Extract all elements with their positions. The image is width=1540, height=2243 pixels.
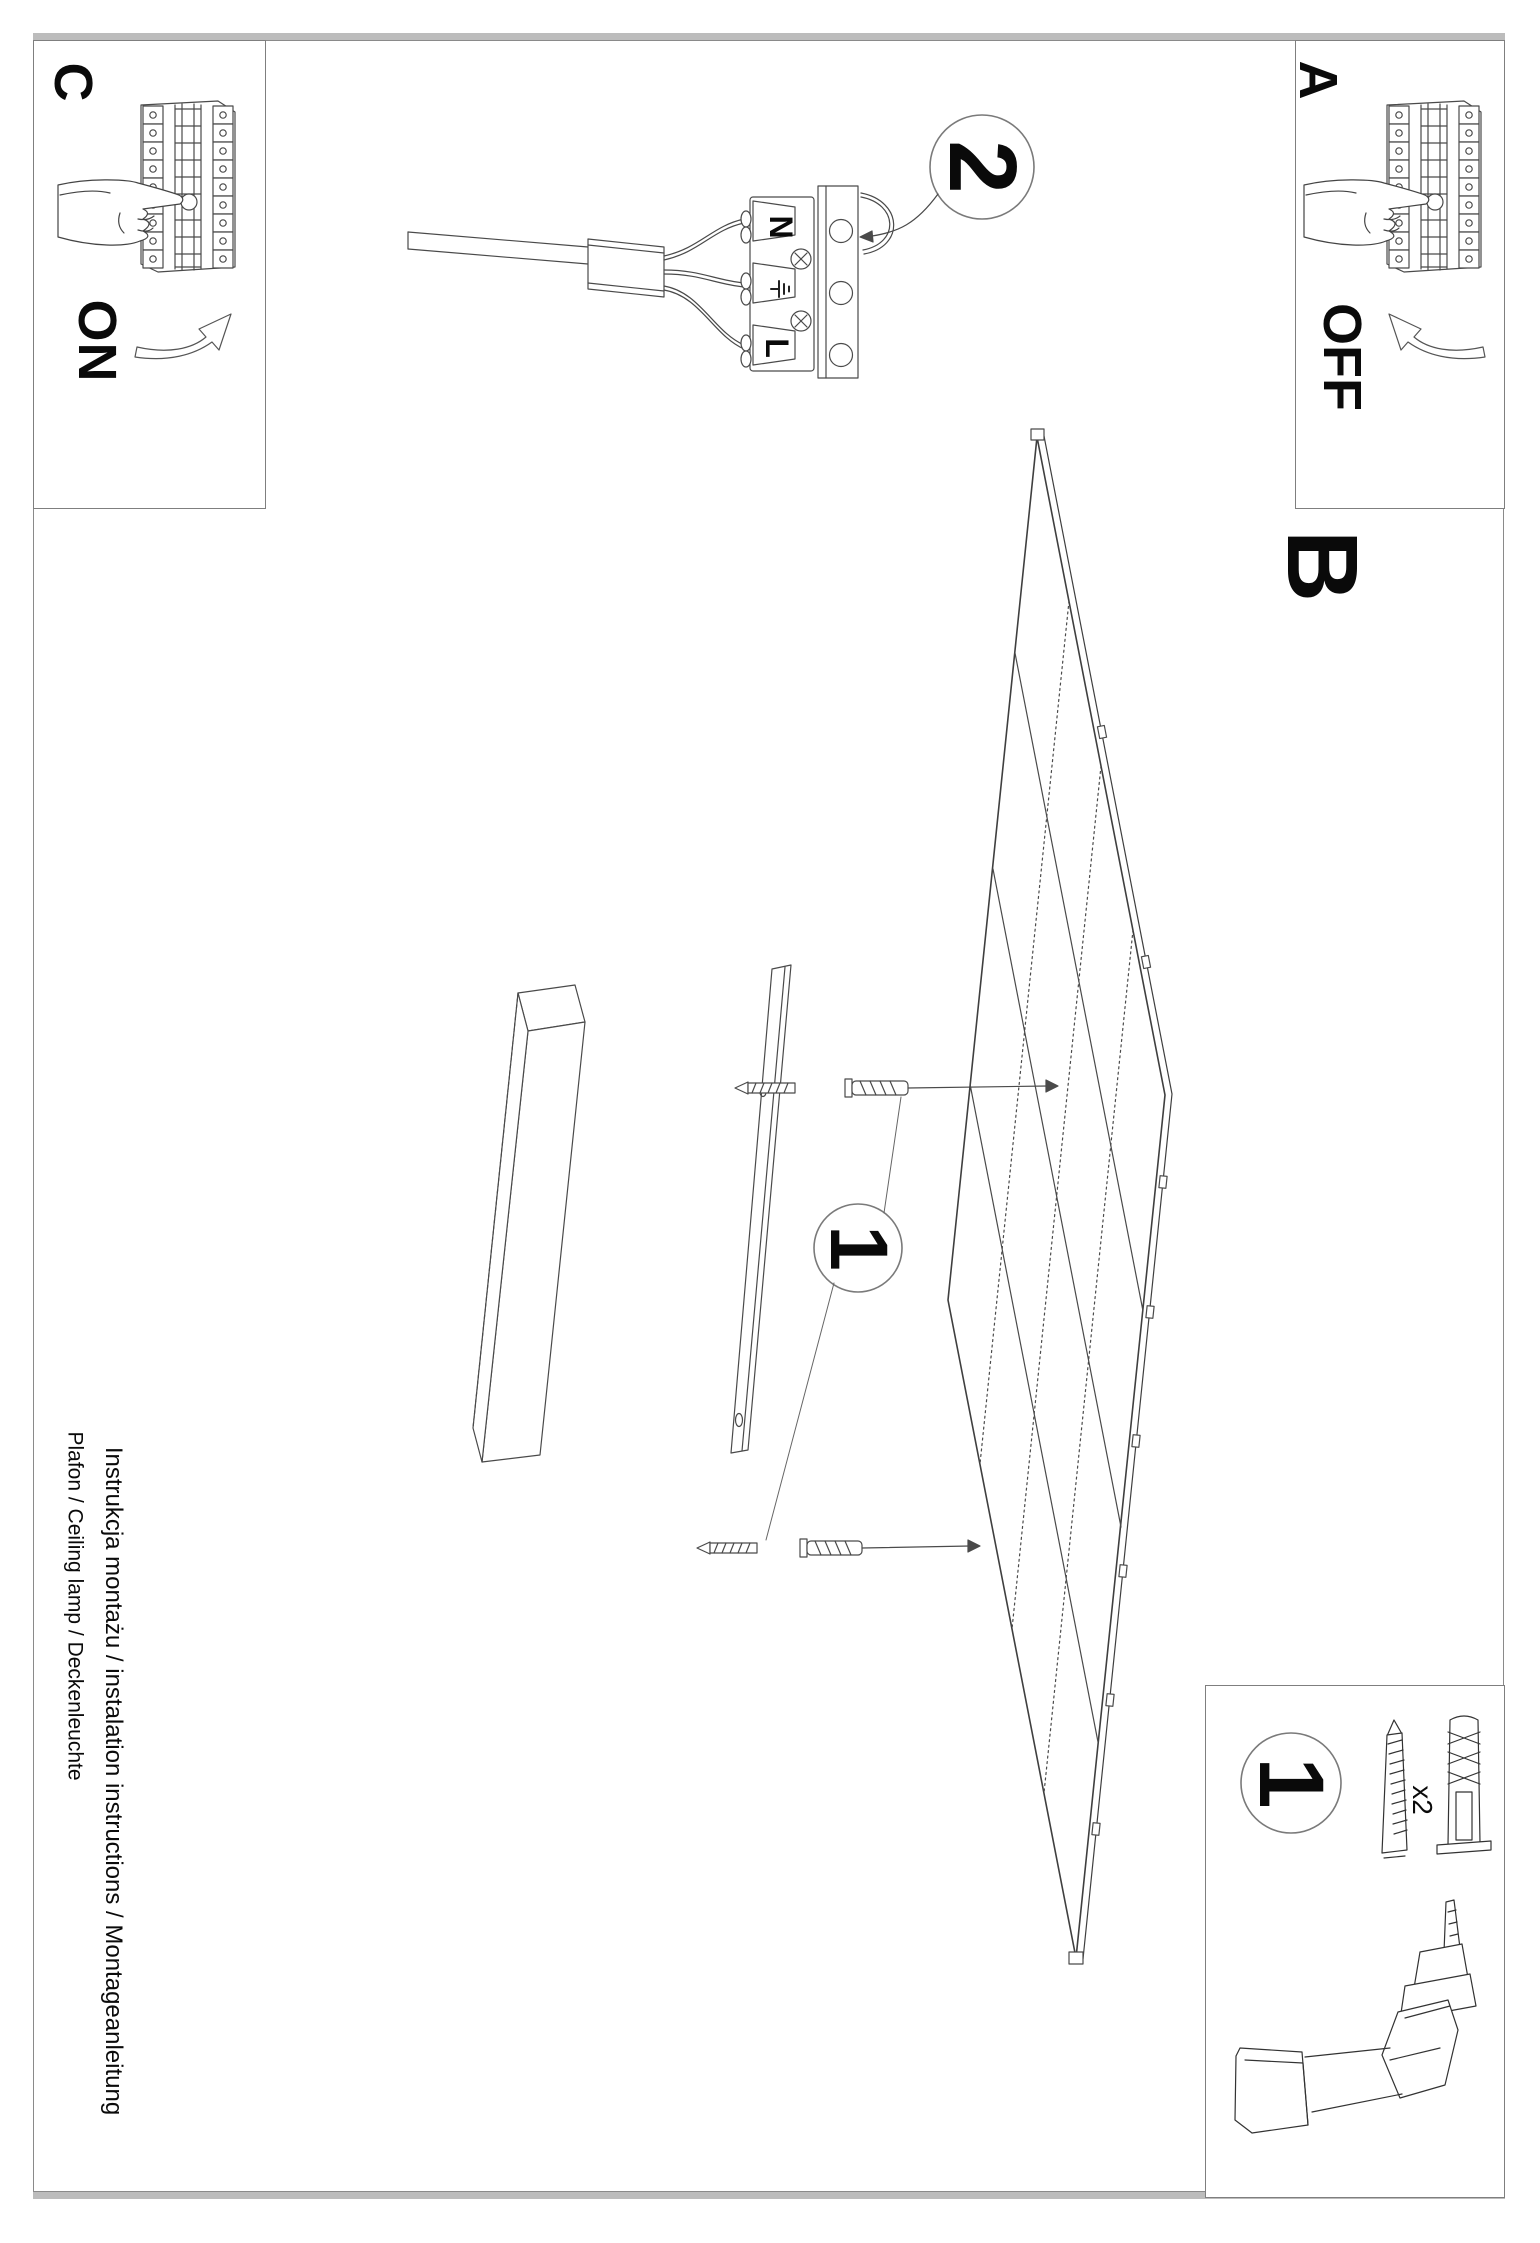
curved-arrow-off-icon	[1389, 314, 1485, 359]
cable-icon	[408, 232, 664, 297]
switch-on-label: ON	[70, 300, 124, 383]
step2-leader-arrow	[860, 194, 938, 242]
parts-badge-number: 1	[1245, 1757, 1337, 1808]
screw-icon	[697, 1542, 757, 1554]
wires-icon	[664, 219, 744, 349]
step2-badge-number: 2	[934, 140, 1030, 193]
terminal-neutral-label: N	[765, 215, 797, 238]
switch-off-label: OFF	[1315, 303, 1369, 411]
screw-icon	[1382, 1720, 1407, 1858]
breaker-panel-icon	[1387, 101, 1481, 272]
step1-badge-number: 1	[817, 1225, 899, 1271]
parts-quantity-label: x2	[1408, 1785, 1436, 1815]
step-a-label: A	[1291, 61, 1345, 100]
step-c-label: C	[46, 63, 100, 102]
mounting-strip-icon	[731, 965, 791, 1453]
leader-arrow	[862, 1540, 980, 1552]
drill-icon	[1235, 1900, 1476, 2133]
footer-product-line: Plafon / Ceiling lamp / Deckenleuchte	[65, 1431, 86, 1780]
step1-leader-lines	[766, 1097, 901, 1540]
grid-panel-icon	[948, 429, 1172, 1964]
wall-plug-icon	[1437, 1716, 1491, 1854]
footer-title-line: Instrukcja montażu / instalation instruc…	[101, 1447, 125, 2115]
wall-plug-icon	[800, 1539, 862, 1557]
diagram-linework	[0, 0, 1540, 2243]
terminal-live-label: L	[761, 338, 793, 358]
curved-arrow-on-icon	[135, 314, 231, 359]
step-b-label: B	[1272, 530, 1372, 602]
wall-plug-icon	[845, 1079, 908, 1097]
breaker-panel-icon	[141, 101, 235, 272]
lamp-housing-icon	[473, 985, 585, 1462]
screw-icon	[735, 1082, 795, 1094]
instruction-sheet: C ON A OFF B 2 1 1 N L x2 Instrukcja mon…	[0, 0, 1540, 2243]
